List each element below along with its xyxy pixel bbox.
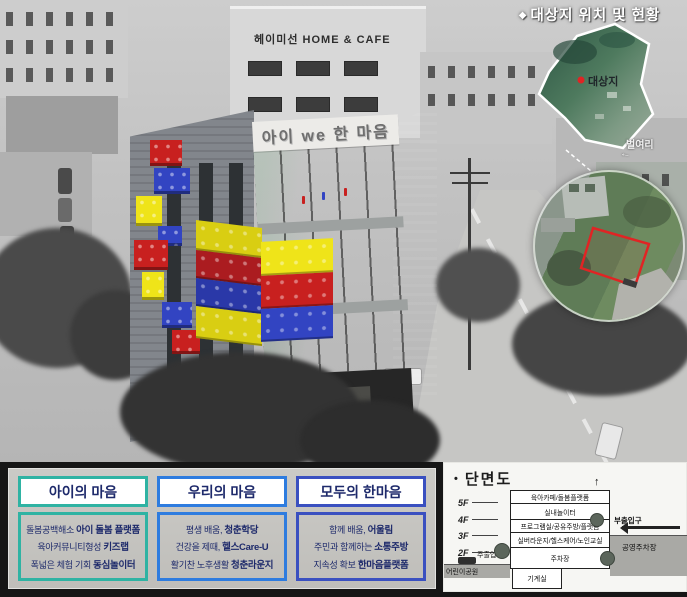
site-marker-label: 대상지: [588, 74, 618, 88]
card-list: 함께 배움, 어울림 주민과 함께하는 소통주방 지속성 확보 한마음플랫폼: [296, 512, 426, 581]
bottom-board: 아이의 마음 돌봄공백해소 아이 돌봄 플랫폼 육아커뮤니티형성 키즈랩 폭넓은…: [0, 462, 687, 597]
background-building: [0, 0, 128, 98]
card-item: 지속성 확보 한마음플랫폼: [301, 557, 421, 571]
bullet-icon: •: [454, 473, 460, 485]
lego-block-blue: [154, 168, 190, 194]
children-park-label: 어린이공원: [446, 567, 478, 577]
roof-figure: [302, 196, 305, 204]
program-cards-panel: 아이의 마음 돌봄공백해소 아이 돌봄 플랫폼 육아커뮤니티형성 키즈랩 폭넓은…: [8, 468, 436, 589]
section-title: •단면도: [454, 468, 512, 489]
parked-car: [58, 198, 72, 222]
floor-label-row: 5F: [458, 493, 498, 511]
lego-band-blue: [261, 305, 333, 342]
presentation-board: 헤이미선 HOME & CAFE: [0, 0, 687, 597]
section-building: 육아카페/돌봄플랫폼 실내놀이터 프로그램실/공유주방/플랫폼 실버라운지/헬스…: [510, 490, 610, 569]
floor-label-row: 3F: [458, 526, 498, 544]
card-item: 주민과 함께하는 소통주방: [301, 539, 421, 553]
card-list: 돌봄공백해소 아이 돌봄 플랫폼 육아커뮤니티형성 키즈랩 폭넓은 체험 기회 …: [18, 512, 148, 581]
site-location-map: 대상지: [537, 22, 659, 154]
section-car: [458, 557, 476, 564]
site-aerial-circle: [533, 170, 685, 322]
floor-room: 주차장: [511, 548, 609, 568]
card-title: 아이의 마음: [18, 476, 148, 507]
lego-band-yellow: [261, 238, 333, 276]
card-item: 평생 배움, 청춘학당: [162, 522, 282, 536]
lego-corner-left: [196, 220, 262, 346]
lego-block-yellow: [142, 272, 164, 300]
roof-figure: [322, 192, 325, 200]
card-item: 폭넓은 체험 기회 동심놀이터: [23, 557, 143, 571]
public-parking-label: 공영주차장: [622, 542, 657, 553]
pole-crossarm: [452, 182, 488, 184]
parked-car: [58, 168, 72, 194]
card-list: 평생 배움, 청춘학당 건강을 제때, 헬스Care-U 활기찬 노후생활 청춘…: [157, 512, 287, 581]
lego-block-red: [134, 240, 168, 270]
glass-floor: [254, 144, 404, 224]
background-wall: [0, 152, 92, 236]
card-item: 건강을 제때, 헬스Care-U: [162, 539, 282, 553]
building-sign: 아이 we 한 마음: [261, 118, 390, 149]
section-tree: [494, 543, 510, 559]
card-title: 모두의 한마음: [296, 476, 426, 507]
trees: [436, 248, 520, 322]
lego-block-red: [150, 140, 182, 166]
site-marker-dot: [578, 77, 585, 84]
diamond-bullet-icon: ◆: [519, 10, 528, 21]
lego-band-red: [261, 272, 333, 309]
ground-left: 어린이공원: [444, 564, 510, 578]
facade-window: [167, 163, 181, 389]
background-building: [6, 96, 118, 154]
lego-block-blue: [162, 302, 192, 328]
machine-room: 기계실: [512, 568, 562, 589]
roof-arrow-icon: ↑: [594, 476, 600, 488]
section-diagram-panel: •단면도 5F 4F 3F 2F 1F ↑ 육아카페/돌봄플랫폼 실내놀이터 프…: [443, 462, 687, 592]
card-child-heart: 아이의 마음 돌봄공백해소 아이 돌봄 플랫폼 육아커뮤니티형성 키즈랩 폭넓은…: [18, 476, 148, 581]
sub-entrance-arrow-icon: [622, 526, 680, 529]
section-tree: [600, 551, 615, 566]
section-tree: [590, 513, 604, 527]
lego-corner-front: [261, 238, 333, 342]
ground-right: 공영주차장: [610, 535, 687, 576]
card-title: 우리의 마음: [157, 476, 287, 507]
background-building: [420, 52, 552, 144]
pole-crossarm: [450, 172, 490, 174]
floor-room: 육아카페/돌봄플랫폼: [511, 491, 609, 504]
lego-block-yellow: [136, 196, 162, 226]
card-item: 돌봄공백해소 아이 돌봄 플랫폼: [23, 522, 143, 536]
card-item: 활기찬 노후생활 청춘라운지: [162, 557, 282, 571]
card-item: 함께 배움, 어울림: [301, 522, 421, 536]
card-our-heart: 우리의 마음 평생 배움, 청춘학당 건강을 제때, 헬스Care-U 활기찬 …: [157, 476, 287, 581]
card-everyone-heart: 모두의 한마음 함께 배움, 어울림 주민과 함께하는 소통주방 지속성 확보 …: [296, 476, 426, 581]
floor-room: 실버라운지/헬스케어/노인교실: [511, 533, 609, 548]
aerial-photo-scene: 헤이미선 HOME & CAFE: [0, 0, 687, 462]
card-item: 육아커뮤니티형성 키즈랩: [23, 539, 143, 553]
cafe-sign: 헤이미선 HOME & CAFE: [254, 31, 391, 47]
site-boundary-outline: [581, 228, 649, 286]
roof-figure: [344, 188, 347, 196]
